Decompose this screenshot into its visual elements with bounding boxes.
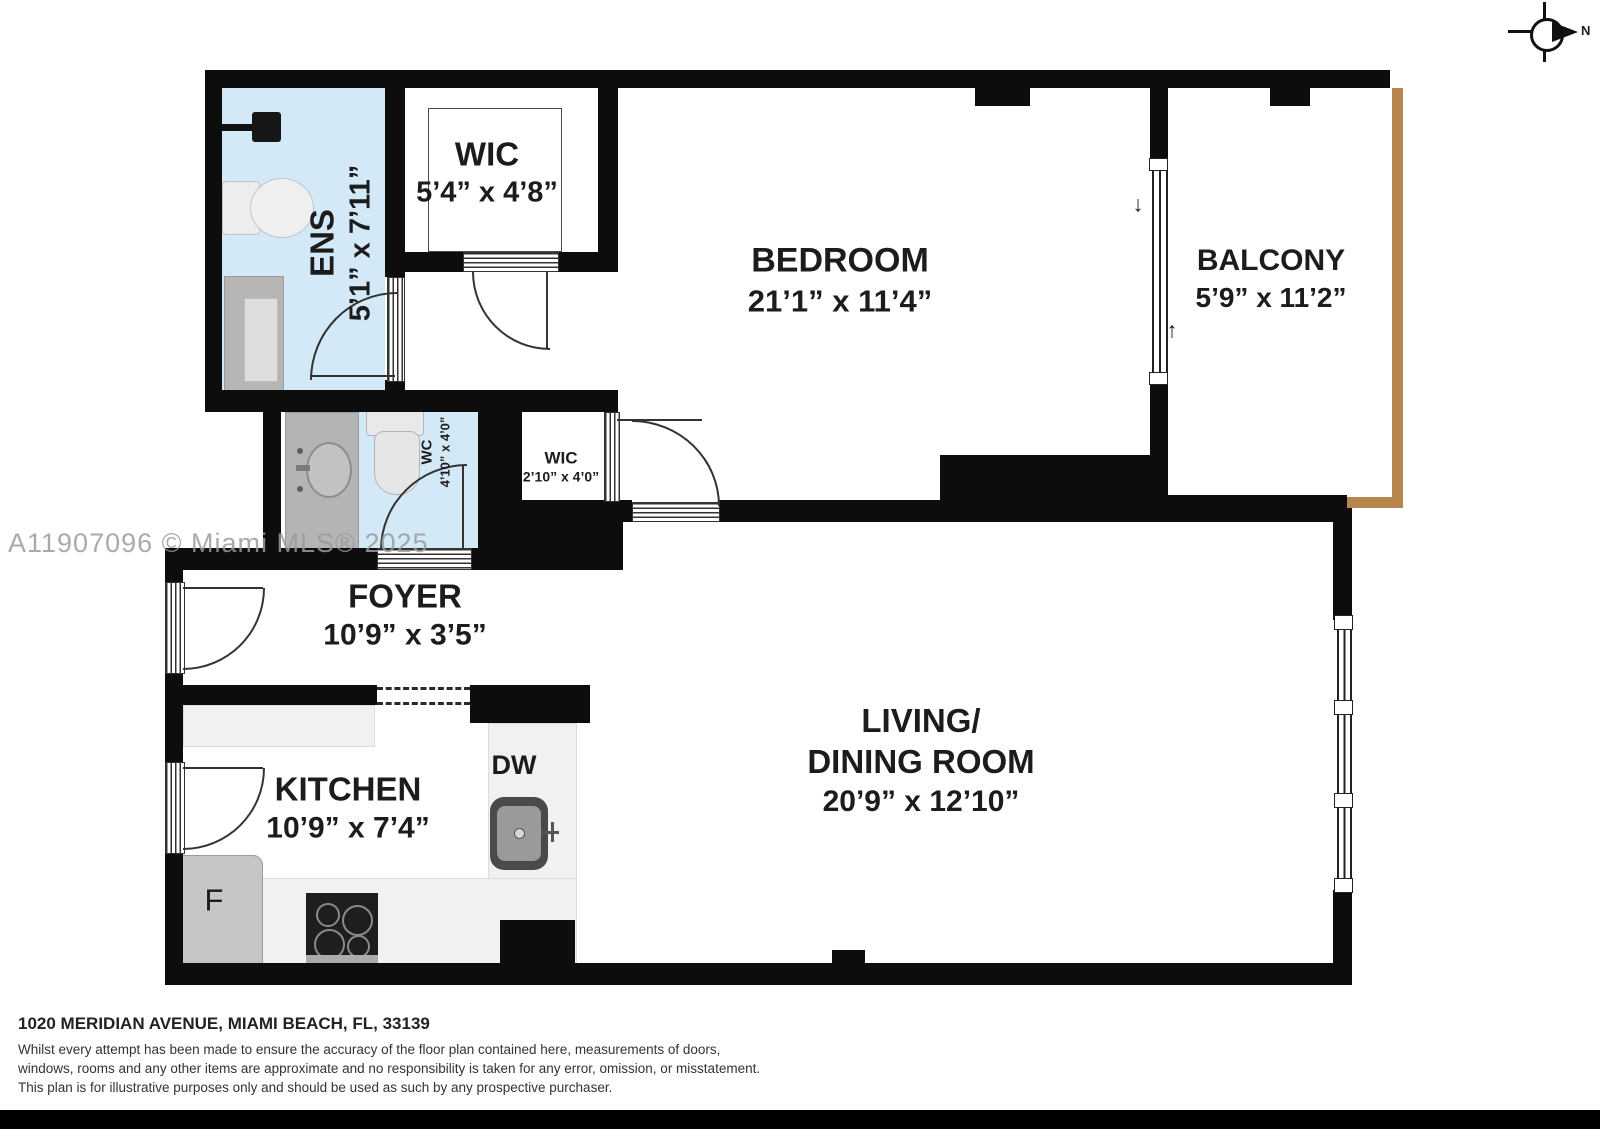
disclaimer-line: This plan is for illustrative purposes o… bbox=[18, 1078, 760, 1097]
wall-living-top-right bbox=[1135, 500, 1352, 522]
room-dims: 10’9” x 7’4” bbox=[266, 810, 429, 848]
wc-vanity-handle bbox=[297, 448, 303, 454]
room-dims: 20’9” x 12’10” bbox=[807, 783, 1034, 821]
shower-head-icon bbox=[252, 112, 281, 142]
wc-vanity-faucet bbox=[296, 465, 310, 471]
window-cap bbox=[1334, 878, 1353, 893]
property-address: 1020 MERIDIAN AVENUE, MIAMI BEACH, FL, 3… bbox=[18, 1014, 430, 1034]
bedroom-door-leaf bbox=[617, 419, 702, 421]
room-name: WC bbox=[419, 417, 438, 488]
room-name: FOYER bbox=[323, 576, 486, 617]
entry-door-swing bbox=[183, 588, 265, 670]
compass-north-label: N bbox=[1581, 23, 1590, 38]
wall-bedroom-top-notch bbox=[975, 88, 1030, 106]
slide-arrow-down-icon: ↓ bbox=[1133, 190, 1144, 218]
room-label-ens: ENS 5’1” x 7’11” bbox=[301, 165, 379, 321]
room-name: BEDROOM bbox=[748, 239, 932, 282]
bedroom-door-swing bbox=[632, 420, 720, 506]
room-dims: 10’9” x 3’5” bbox=[323, 617, 486, 655]
room-name: DINING ROOM bbox=[807, 741, 1034, 782]
wc-vanity-handle bbox=[297, 486, 303, 492]
room-name: ENS bbox=[301, 165, 342, 321]
room-label-foyer: FOYER 10’9” x 3’5” bbox=[323, 576, 486, 655]
wic-door-sill bbox=[463, 252, 559, 272]
shower-head-icon bbox=[222, 124, 256, 131]
room-dims: 5’9” x 11’2” bbox=[1195, 279, 1346, 314]
room-label-balcony: BALCONY 5’9” x 11’2” bbox=[1195, 242, 1346, 315]
disclaimer-line: windows, rooms and any other items are a… bbox=[18, 1059, 760, 1078]
wall-living-right-top bbox=[1333, 500, 1352, 620]
wall-living-bottom-notch bbox=[832, 950, 865, 965]
balcony-sliding-door bbox=[1152, 165, 1168, 377]
wic-door-leaf bbox=[546, 272, 548, 348]
kitchen-sink-drain bbox=[514, 828, 525, 839]
foyer-kitchen-opening bbox=[377, 687, 470, 705]
room-label-living-dining: LIVING/ DINING ROOM 20’9” x 12’10” bbox=[807, 700, 1034, 820]
balcony-railing bbox=[1392, 88, 1403, 508]
living-window bbox=[1337, 620, 1352, 888]
room-label-wic-top: WIC 5’4” x 4’8” bbox=[416, 133, 558, 211]
wall-bottom bbox=[165, 963, 1352, 985]
ens-vanity-basin bbox=[244, 298, 278, 382]
wic-door-swing bbox=[472, 272, 550, 350]
kitchen-door-leaf bbox=[183, 767, 263, 769]
sliding-door-cap bbox=[1149, 158, 1168, 171]
kitchen-door-jamb bbox=[165, 762, 185, 854]
room-label-kitchen: KITCHEN 10’9” x 7’4” bbox=[266, 769, 429, 848]
room-name: BALCONY bbox=[1195, 242, 1346, 280]
window-cap bbox=[1334, 615, 1353, 630]
stove-burner bbox=[316, 903, 340, 927]
room-dims: 5’4” x 4’8” bbox=[416, 175, 558, 211]
room-dims: 4’10” x 4’0” bbox=[437, 417, 453, 488]
wall-top bbox=[205, 70, 1390, 88]
wall-foyer-top-right bbox=[470, 548, 623, 570]
window-mullion bbox=[1334, 793, 1353, 808]
wall-foyer-bottom-left bbox=[165, 685, 377, 705]
balcony-railing bbox=[1347, 497, 1403, 508]
kitchen-faucet bbox=[541, 831, 559, 834]
kitchen-faucet bbox=[551, 822, 554, 842]
wall-left-upper bbox=[205, 70, 222, 410]
room-name: LIVING/ bbox=[807, 700, 1034, 741]
window-mullion bbox=[1334, 700, 1353, 715]
sliding-door-cap bbox=[1149, 372, 1168, 385]
wall-balcony-divider-top bbox=[1150, 88, 1168, 165]
room-dims: 2’10” x 4’0” bbox=[523, 469, 599, 487]
wall-balcony-divider-bottom bbox=[1150, 375, 1168, 505]
kitchen-counter-top bbox=[183, 705, 375, 747]
wall-left-seg-c bbox=[165, 852, 183, 965]
dishwasher-label: DW bbox=[492, 749, 537, 783]
entry-door-jamb bbox=[165, 582, 185, 674]
wall-wic-right bbox=[598, 88, 618, 272]
entry-door-leaf bbox=[183, 587, 263, 589]
room-label-bedroom: BEDROOM 21’1” x 11’4” bbox=[748, 239, 932, 320]
fridge-label: F bbox=[205, 882, 224, 921]
wall-balcony-top-notch bbox=[1270, 88, 1310, 106]
footer-bar bbox=[0, 1110, 1600, 1129]
room-dims: 21’1” x 11’4” bbox=[748, 282, 932, 321]
ens-door-leaf bbox=[310, 375, 395, 377]
room-name: WIC bbox=[523, 448, 599, 469]
wall-ens-right-top bbox=[385, 88, 405, 277]
compass-arrow bbox=[1552, 22, 1578, 42]
room-label-wic-small: WIC 2’10” x 4’0” bbox=[523, 448, 599, 487]
wc-vanity-sink bbox=[306, 442, 352, 498]
kitchen-door-swing bbox=[183, 768, 265, 850]
wall-wc-right bbox=[478, 412, 522, 548]
small-wic-door-jamb bbox=[604, 412, 620, 502]
room-name: KITCHEN bbox=[266, 769, 429, 810]
room-dims: 5’1” x 7’11” bbox=[343, 165, 379, 321]
floor-plan: ↓ ↑ ENS 5’1” x 7’11” WIC 5’4” x 4’8” BED… bbox=[0, 0, 1600, 1129]
wc-door-leaf bbox=[462, 466, 464, 548]
wall-foyer-bottom-right bbox=[470, 685, 590, 723]
room-label-wc: WC 4’10” x 4’0” bbox=[419, 417, 454, 488]
wall-bedroom-bottom-a bbox=[605, 500, 632, 522]
slide-arrow-up-icon: ↑ bbox=[1167, 316, 1178, 344]
wall-bedroom-bottom-b bbox=[718, 500, 940, 522]
mls-watermark: A11907096 © Miami MLS® 2025 bbox=[8, 528, 429, 559]
wall-kitchen-bottom-block bbox=[500, 920, 575, 965]
room-name: WIC bbox=[416, 133, 558, 174]
disclaimer-line: Whilst every attempt has been made to en… bbox=[18, 1040, 760, 1059]
wall-wic-bottom-left bbox=[403, 252, 463, 272]
stove-burner bbox=[342, 905, 373, 936]
disclaimer-text: Whilst every attempt has been made to en… bbox=[18, 1040, 760, 1097]
wall-bedroom-bottom-block bbox=[940, 455, 1150, 522]
